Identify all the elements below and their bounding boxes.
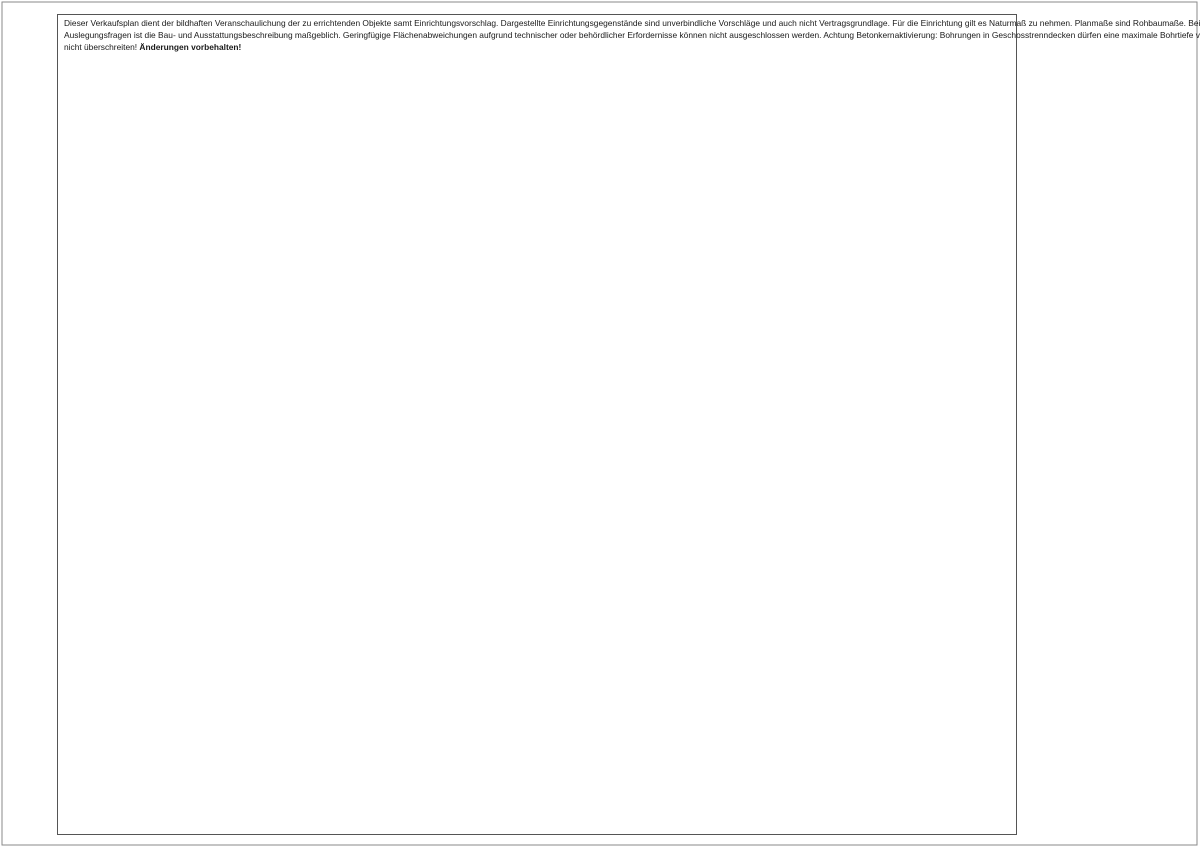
svg-text:nicht überschreiten! Änderung: nicht überschreiten! Änderungen vorbehal… [64,42,241,52]
svg-text:Auslegungsfragen ist die Bau-: Auslegungsfragen ist die Bau- und Aussta… [64,30,1200,40]
svg-text:Dieser Verkaufsplan dient der: Dieser Verkaufsplan dient der bildhaften… [64,18,1200,28]
